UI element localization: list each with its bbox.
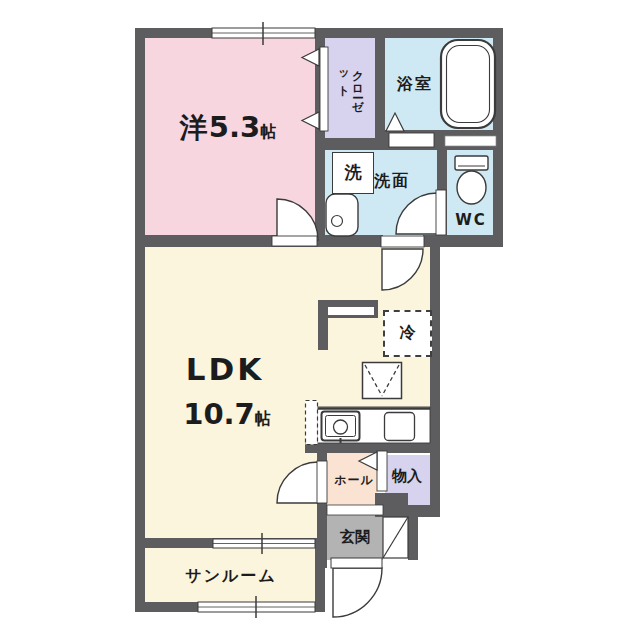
floor-plan: 洗 冷 xyxy=(0,0,640,640)
washroom-label: 洗面 xyxy=(374,171,410,192)
wc-door-slab xyxy=(436,190,446,235)
closet-door-triangle-top xyxy=(302,49,319,66)
closet-label: クローゼット xyxy=(337,63,365,107)
stove xyxy=(385,413,415,441)
hall-door-arc xyxy=(277,462,318,503)
sunroom-bottom-window xyxy=(198,596,315,618)
counter-side-dashed xyxy=(306,401,318,445)
refrigerator-box: 冷 xyxy=(383,310,432,357)
hall-label: ホール xyxy=(334,472,374,489)
bath-door-slab xyxy=(389,133,434,147)
storage-label: 物入 xyxy=(392,467,422,486)
wc-door-arc xyxy=(396,193,437,234)
washer-label: 洗 xyxy=(345,162,362,182)
washroom-door-slab xyxy=(381,236,424,247)
bathtub xyxy=(441,40,495,128)
western-room-unit: 帖 xyxy=(260,122,276,141)
kitchen-wall-slot xyxy=(328,307,374,315)
washroom-door-arc xyxy=(382,249,423,290)
entrance-door-slab xyxy=(331,558,382,568)
entrance-door-arc xyxy=(333,568,382,617)
western-room-size: 5.3 xyxy=(209,110,260,144)
plan-symbols xyxy=(0,0,640,640)
western-room-door-arc xyxy=(277,199,318,240)
entrance-label: 玄関 xyxy=(340,528,370,547)
wall-cabinet xyxy=(363,363,402,399)
sunroom-top-window xyxy=(213,533,315,554)
western-door-slab xyxy=(272,236,317,246)
western-room-name: 洋 xyxy=(180,111,209,144)
closet-door-triangle-bottom xyxy=(302,112,319,129)
toilet xyxy=(455,156,488,204)
wc-window-slot xyxy=(445,136,496,146)
closet-door-slab xyxy=(320,47,328,131)
hall-door-slab xyxy=(317,461,327,503)
ldk-label: LDK xyxy=(186,351,265,387)
western-room-window xyxy=(212,22,315,45)
storage-door-slab xyxy=(377,451,387,491)
bathroom-label: 浴室 xyxy=(397,74,433,95)
washbasin xyxy=(326,194,358,236)
shoe-cabinet xyxy=(383,517,408,558)
bath-door-triangle xyxy=(386,113,404,131)
refrigerator-label: 冷 xyxy=(400,323,416,342)
western-room-label: 洋5.3帖 xyxy=(180,109,276,147)
washing-machine: 洗 xyxy=(332,152,374,194)
storage-door-triangle xyxy=(359,452,377,470)
ldk-unit: 帖 xyxy=(255,409,271,428)
ldk-size: 10.7 xyxy=(183,397,255,431)
sunroom-label: サンルーム xyxy=(185,566,277,587)
entrance-step xyxy=(327,505,383,515)
kitchen-sink xyxy=(322,412,360,444)
wc-label: WC xyxy=(455,211,487,229)
ldk-size-label: 10.7帖 xyxy=(183,397,271,431)
